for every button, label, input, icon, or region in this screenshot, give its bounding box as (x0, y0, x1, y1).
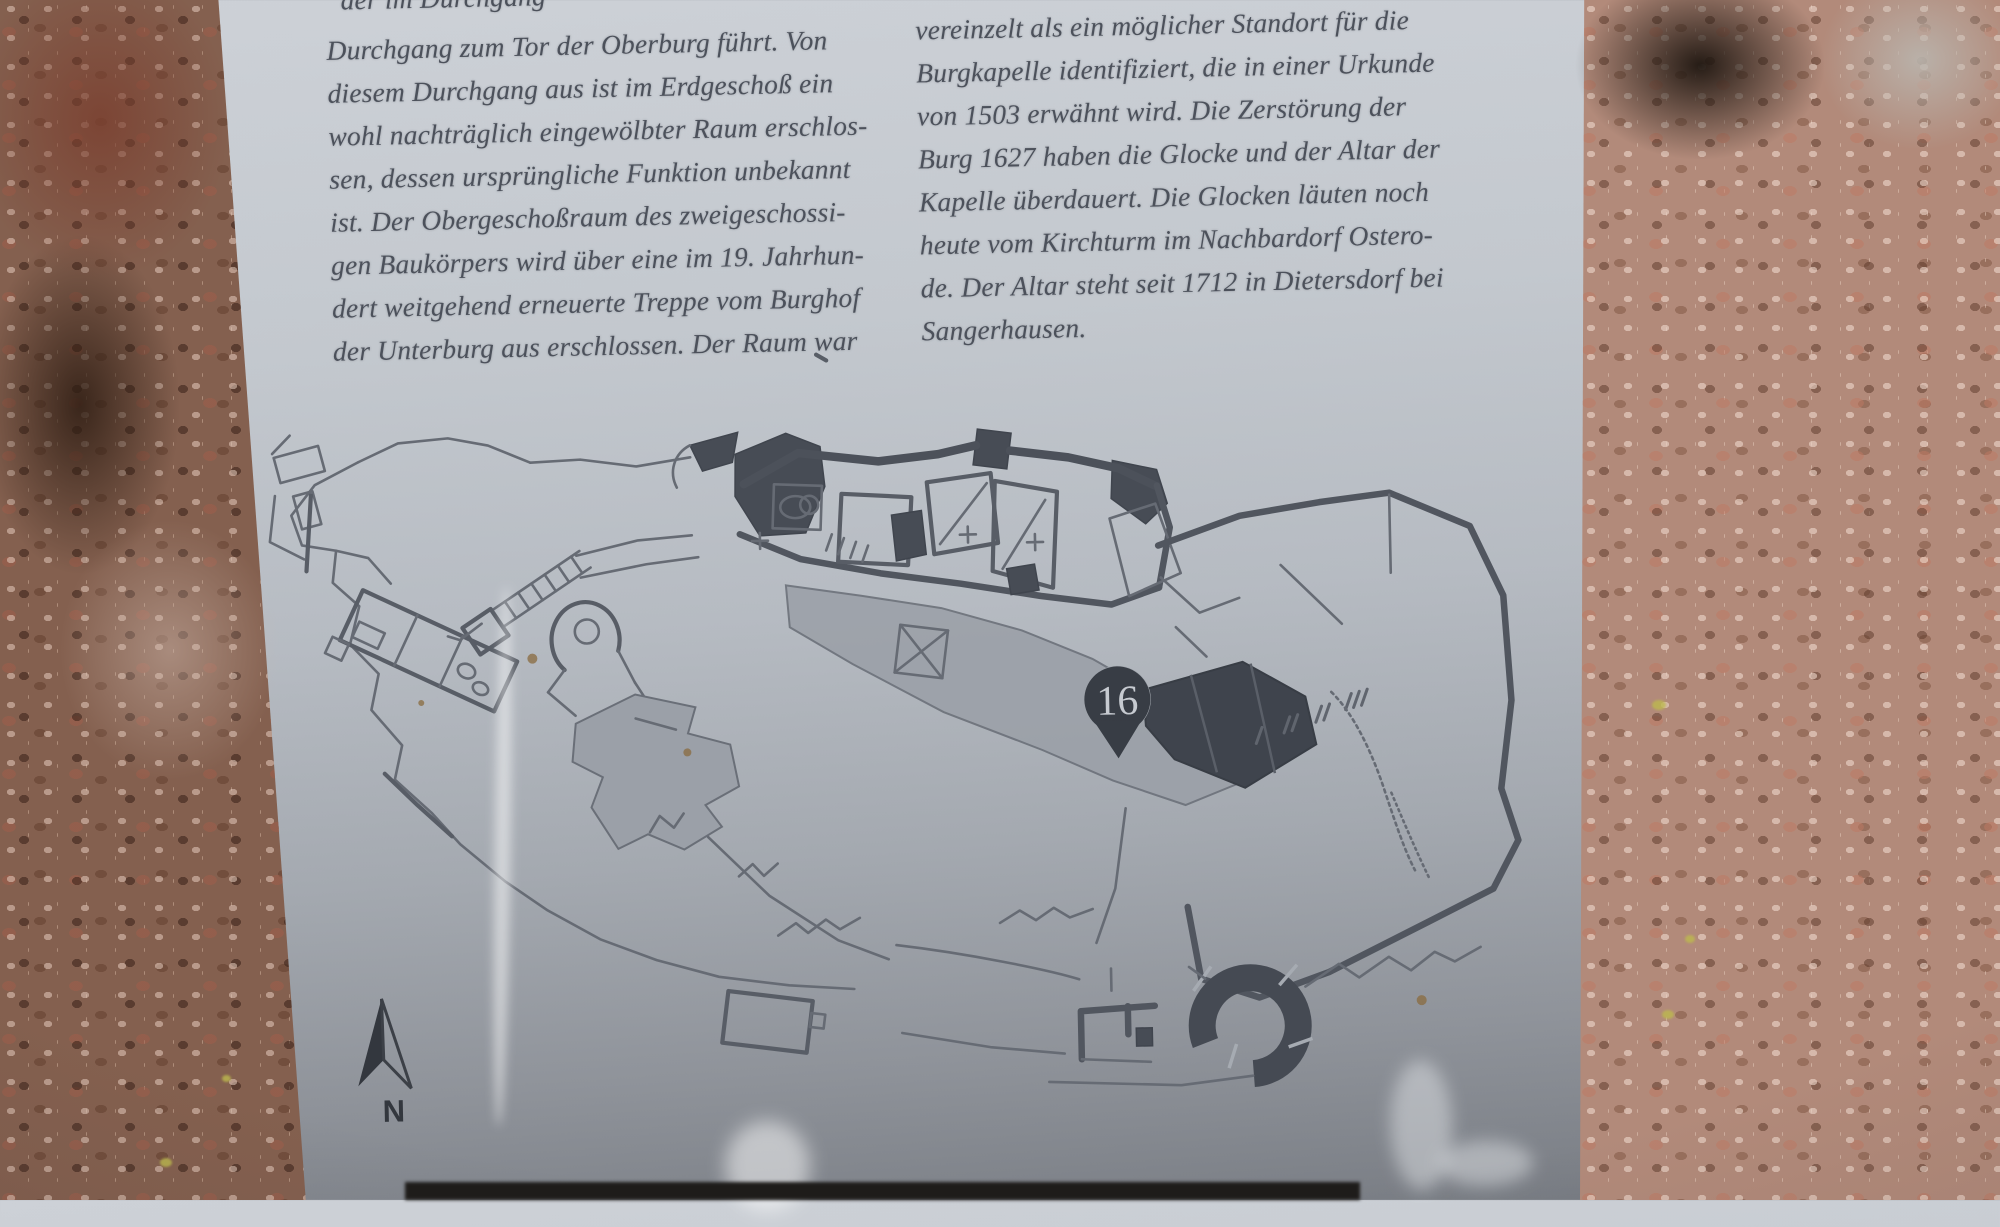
lichen-spot (160, 1158, 172, 1167)
right-text-column: vereinzelt als ein möglicher Standort fü… (915, 0, 1467, 352)
lichen-spot (222, 1075, 231, 1082)
photo-of-castle-info-panel: { "panel": { "partial_top_line": "der im… (0, 0, 2000, 1200)
rock-face-right (1580, 0, 2000, 1200)
glare-smudge (1438, 1140, 1534, 1187)
outline-rectangle (722, 991, 826, 1054)
terrain-lines (778, 904, 1254, 1094)
marker-label: 16 (1096, 678, 1139, 725)
plate-bottom-shadow (405, 1182, 1360, 1200)
north-arrow-icon: N (356, 998, 412, 1129)
lichen-spot (1662, 1010, 1674, 1019)
bottom-buildings (721, 982, 1156, 1071)
rock-light-band (60, 520, 280, 780)
north-label: N (382, 1093, 405, 1128)
lichen-spot (1685, 935, 1695, 943)
lichen-spot (1652, 700, 1666, 710)
clipped-text-line: der im Durchgang (340, 0, 546, 17)
castle-site-plan: 16 N (236, 319, 1584, 1197)
west-wall-fragments (268, 435, 327, 572)
left-text-column: Durchgang zum Tor der Oberburg führt. Vo… (326, 18, 853, 373)
southwest-building (571, 689, 889, 965)
entrance-ramp (446, 535, 700, 655)
